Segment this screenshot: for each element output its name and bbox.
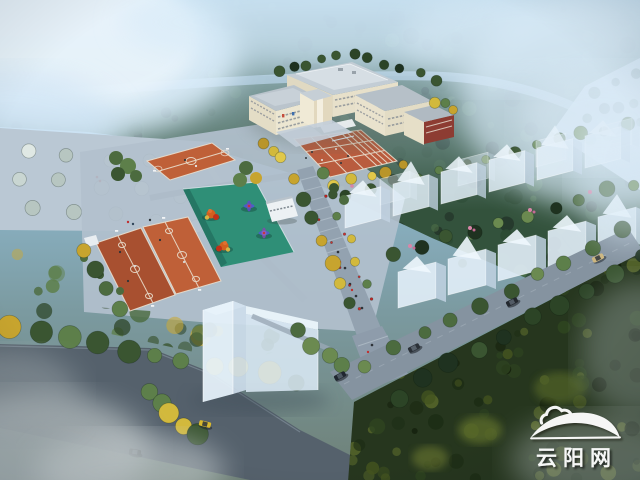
watermark-text: 云阳网: [536, 442, 617, 472]
cloud-logo-icon: [526, 404, 626, 446]
campus-aerial-rendering: 云阳网: [0, 0, 640, 480]
watermark: 云阳网: [514, 402, 640, 476]
